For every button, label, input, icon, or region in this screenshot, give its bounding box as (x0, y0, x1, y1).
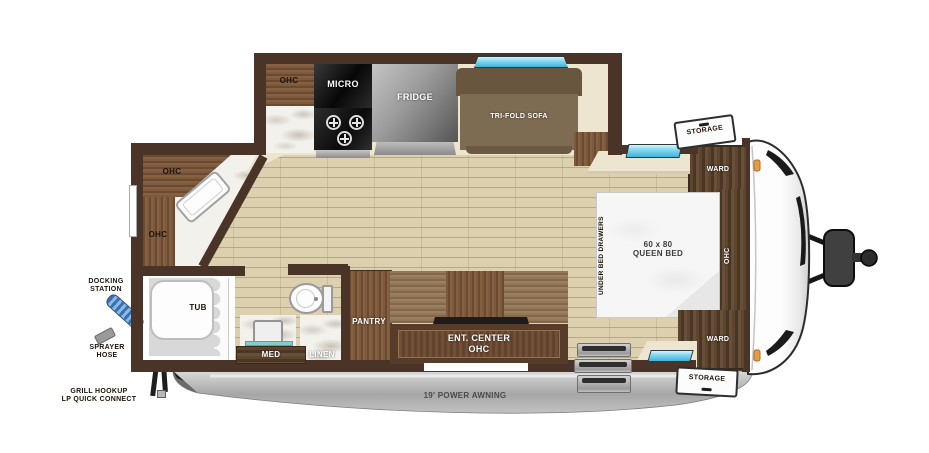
sofa-backrest (456, 68, 582, 96)
docking-station-label: DOCKING STATION (70, 278, 142, 295)
stove-front (316, 150, 370, 158)
ward-bottom-label: WARD (690, 336, 746, 344)
sprayer-line1: SPRAYER (76, 344, 138, 352)
bedroom-ohc-label: OHC (724, 228, 740, 284)
pantry-label: PANTRY (340, 317, 398, 326)
stove-burner-icon (349, 115, 364, 130)
slide-left-wall (254, 55, 266, 155)
step-nosing (579, 362, 627, 367)
fridge-label: FRIDGE (372, 92, 458, 103)
slide-top-wall (254, 53, 622, 64)
propane-cover (824, 230, 854, 286)
bath-wall-top-right (288, 264, 348, 275)
ent-center-label: ENT. CENTER OHC (398, 333, 560, 354)
front-cap (748, 140, 809, 374)
kitchen-counter (262, 106, 314, 153)
bedroom-window-bottom (647, 350, 693, 362)
grill-line1: GRILL HOOKUP (40, 388, 158, 396)
stove-burner-icon (337, 131, 352, 146)
corner-ohc-upper-label: OHC (146, 167, 198, 176)
under-bed-drawers-label: UNDER BED DRAWERS (598, 200, 612, 312)
sprayer-line2: HOSE (76, 352, 138, 360)
bath-wall-top-left (143, 266, 245, 276)
toilet-tank (322, 285, 333, 313)
queen-bed-label: 60 x 80 QUEEN BED (616, 240, 700, 259)
med-label: MED (236, 350, 306, 359)
shower-curtain (214, 278, 229, 362)
rv-floorplan: OHC MICRO FRIDGE TRI-FOLD SOFA OHC OHC T (0, 0, 929, 453)
lp-connector-icon (157, 390, 166, 398)
window-above-sofa (474, 56, 568, 68)
corner-ohc-lower-label: OHC (134, 230, 182, 239)
sofa-seat (460, 94, 578, 150)
stove-cooktop (314, 108, 372, 150)
grill-hookup-label: GRILL HOOKUP LP QUICK CONNECT (40, 388, 158, 405)
rear-left-wall (131, 143, 143, 372)
marker-light-icon (754, 350, 760, 361)
docking-line1: DOCKING (70, 278, 142, 286)
microwave-label: MICRO (314, 79, 372, 90)
tub-label: TUB (170, 303, 226, 312)
awning-label: 19' POWER AWNING (405, 391, 525, 400)
entry-threshold (424, 363, 528, 371)
ent-center-label-line2: OHC (398, 344, 560, 355)
stove-burner-icon (326, 115, 341, 130)
linen-label: LINEN (298, 350, 346, 359)
front-cap-graphic (740, 128, 890, 386)
queen-bed-label-line2: QUEEN BED (616, 249, 700, 258)
queen-bed-label-line1: 60 x 80 (616, 240, 700, 249)
step-nosing (582, 378, 626, 383)
sprayer-hose-label: SPRAYER HOSE (76, 344, 138, 361)
sofa-label: TRI-FOLD SOFA (456, 113, 582, 121)
pantry-cabinet (346, 270, 392, 362)
ward-top-label: WARD (690, 166, 746, 174)
sofa-front (466, 146, 572, 154)
entry-step (577, 375, 631, 393)
bedroom-window-top (626, 144, 683, 158)
step-nosing (582, 346, 626, 351)
storage-handle-icon (702, 388, 712, 392)
ent-center-tall-cabinet (446, 271, 504, 323)
bath-wall-right (341, 266, 350, 362)
marker-light-icon (754, 160, 760, 171)
slide-right-wall (608, 53, 622, 155)
entry-step (574, 359, 632, 373)
sprayer-nozzle-icon (94, 327, 116, 345)
kitchen-ohc-label: OHC (262, 76, 316, 85)
grill-line2: LP QUICK CONNECT (40, 396, 158, 404)
hitch-jack-knob (861, 250, 877, 266)
fridge-front (374, 142, 456, 155)
rear-top-wall (131, 143, 266, 155)
entry-step (577, 343, 631, 357)
toilet-bowl (289, 283, 324, 314)
docking-line2: STATION (70, 286, 142, 294)
ent-center-label-line1: ENT. CENTER (398, 333, 560, 344)
